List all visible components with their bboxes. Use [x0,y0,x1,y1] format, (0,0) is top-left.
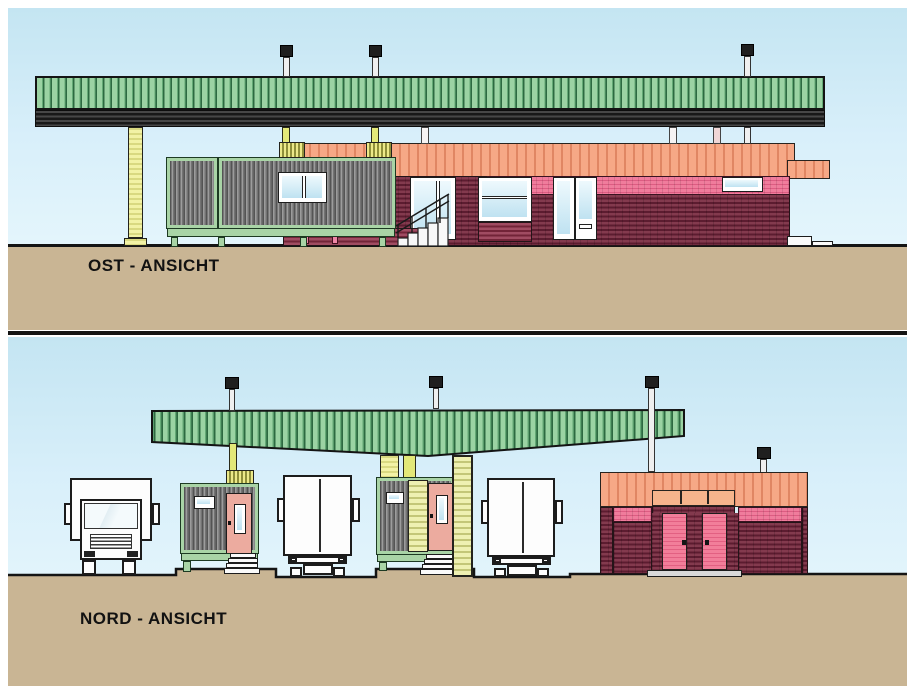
booth-door [226,493,252,554]
window [478,177,532,222]
roof-post [421,127,429,144]
door-handle [682,540,686,545]
truck-marker-light [494,558,501,563]
truck-windshield [84,503,138,529]
support-leg [379,237,386,247]
roof-ledge-right [787,160,830,179]
building-edge [802,507,808,574]
roof-post [669,127,677,144]
truck-wheel [537,568,549,577]
corner-step [787,236,812,246]
container-module [167,158,217,228]
truck-wheel [122,560,136,575]
booth-door [428,483,453,551]
panel-separator [8,331,907,335]
porch-pier [727,513,738,570]
chimney-cap [369,45,382,57]
truck-tail-lift [507,565,537,576]
building-pink-band [738,507,802,522]
truck-wheel [494,568,506,577]
flue-pipe [229,443,237,471]
truck-mirror [64,503,72,525]
flue-pipe [403,455,416,480]
building-wall [613,522,652,574]
truck-mirror [152,503,160,525]
chimney-pipe [372,57,379,77]
chimney-cap [757,447,771,459]
truck-wheel [290,567,302,577]
canopy-column-base [124,238,147,246]
window-mullion [302,176,306,198]
flue-pipe [282,127,290,143]
page: { "panels": [ { "id": "ost", "label": "O… [0,0,915,691]
canopy-main-column [452,455,473,577]
truck-door-split [522,482,524,553]
flue-collar [226,470,254,484]
truck-door-split [319,479,321,552]
support-leg [379,562,387,571]
entrance-door [662,513,687,570]
chimney-pipe [229,389,235,411]
flue-collar [279,142,305,158]
building-edge [600,507,613,574]
support-leg [300,237,307,247]
roof-post [713,127,721,144]
truck-wheel [82,560,96,575]
chimney-pipe [433,388,439,409]
booth-window [386,492,404,504]
canopy-column [380,455,399,480]
staircase [393,186,463,254]
door-handle-plate [579,224,592,229]
support-leg [171,237,178,247]
container-rail [167,228,395,237]
door-handle [430,514,433,518]
chimney-pipe [744,56,751,77]
ost-ansicht-label: OST - ANSICHT [88,256,219,276]
nord-ansicht-label: NORD - ANSICHT [80,609,227,629]
window-spandrel [478,222,532,242]
corner-step [812,241,833,246]
truck-box [487,478,555,557]
truck-wheel [333,567,345,577]
window [553,177,575,240]
chimney-cap [645,376,659,388]
truck-mirror [352,498,360,522]
door-handle [228,521,231,525]
chimney-pipe [648,388,655,472]
truck-box [283,475,352,556]
window-transom [482,196,527,199]
porch-pier [687,513,702,570]
entrance-door [702,513,727,570]
entrance-platform [647,570,742,577]
panel-nord-elevation: NORD - ANSICHT [8,337,907,686]
canopy-beam [35,110,825,127]
canopy-roof [35,76,825,110]
flue-pipe [371,127,379,143]
booth-step [224,568,260,574]
canopy-column [128,127,143,238]
booth-window [194,496,215,509]
truck-headlight [127,551,138,557]
truck-headlight [84,551,95,557]
porch-lintel [652,490,735,506]
truck-mirror [555,500,563,524]
flue-collar [366,142,392,158]
entry-door [575,177,597,240]
chimney-cap [429,376,443,388]
building-wall [738,522,802,574]
chimney-cap [741,44,754,56]
support-leg [218,237,225,247]
support-leg [183,561,191,572]
truck-tail-lift [303,564,333,575]
truck-marker-light [542,558,549,563]
container-window [278,172,327,203]
chimney-pipe [283,57,290,77]
chimney-cap [225,377,239,389]
flue-pipe [744,127,751,144]
truck-marker-light [290,557,297,562]
porch-pier [652,513,662,570]
building-pink-band [613,507,652,522]
chimney-cap [280,45,293,57]
truck-cab [80,499,142,560]
clerestory-window [722,177,763,192]
panel-ost-elevation: OST - ANSICHT [8,8,907,330]
column-through-booth [408,480,428,552]
chimney-pipe [760,459,767,473]
door-handle [705,540,709,545]
truck-grille [90,534,132,549]
truck-marker-light [338,557,345,562]
